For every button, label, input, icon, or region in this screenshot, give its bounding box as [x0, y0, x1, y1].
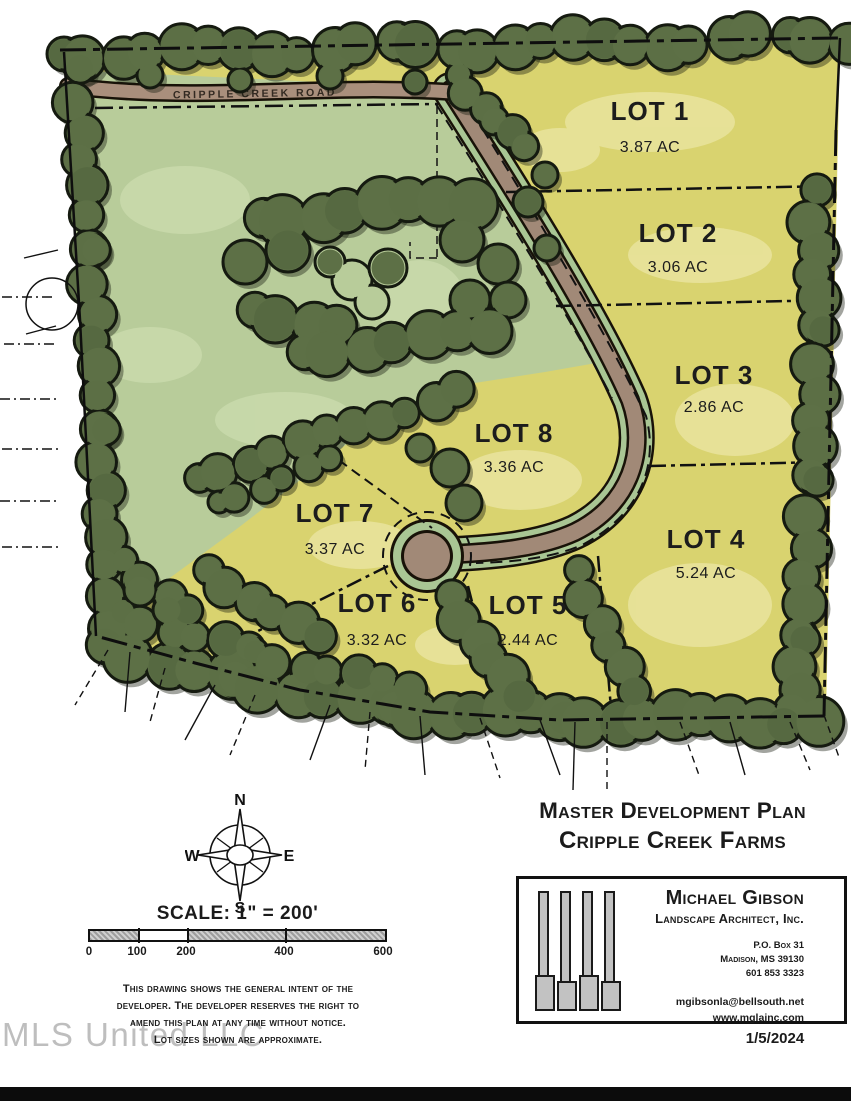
firm-name: Michael Gibson — [572, 887, 804, 910]
lot-label: LOT 1 — [611, 96, 690, 126]
development-plan-page: CRIPPLE CREEK ROAD — [0, 0, 851, 1101]
lot-acreage: 3.87 AC — [620, 139, 680, 156]
lot-label: LOT 3 — [675, 360, 754, 390]
bottom-black-bar — [0, 1087, 851, 1101]
contact-line: www.mglainc.com — [572, 1011, 804, 1027]
lot-acreage: 2.44 AC — [498, 632, 558, 649]
lot-label: LOT 5 — [489, 590, 568, 620]
title-block: Michael Gibson Landscape Architect, Inc.… — [516, 876, 847, 1024]
scale-tick-label: 0 — [86, 946, 92, 958]
scale-tick-label: 100 — [127, 946, 146, 958]
compass-w-label: W — [185, 848, 200, 865]
disclaimer-line: This drawing shows the general intent of… — [74, 981, 402, 998]
scale-tick-label: 600 — [373, 946, 392, 958]
firm-info: Michael Gibson Landscape Architect, Inc.… — [572, 887, 804, 1027]
scale-segment — [90, 931, 139, 940]
disclaimer-line: developer. The developer reserves the ri… — [74, 998, 402, 1015]
scale-segment — [286, 931, 385, 940]
plat-map: CRIPPLE CREEK ROAD — [0, 0, 851, 792]
scale-bar — [88, 929, 387, 942]
lot-label: LOT 6 — [338, 588, 417, 618]
lot-acreage: 2.86 AC — [684, 399, 744, 416]
firm-contact: mgibsonla@bellsouth.net www.mglainc.com — [572, 995, 804, 1027]
scale-segment — [188, 931, 286, 940]
lot-label: LOT 2 — [639, 218, 718, 248]
address-line: 601 853 3323 — [572, 967, 804, 981]
disclaimer-text: This drawing shows the general intent of… — [74, 981, 402, 1049]
disclaimer-line: amend this plan at any time without noti… — [74, 1015, 402, 1032]
scale-segment — [139, 931, 188, 940]
compass-e-label: E — [284, 848, 295, 865]
compass-n-label: N — [234, 793, 246, 809]
plan-title-line1: Master Development Plan — [500, 798, 845, 824]
lot-acreage: 5.24 AC — [676, 565, 736, 582]
lot-acreage: 3.37 AC — [305, 541, 365, 558]
lot-label: LOT 4 — [667, 524, 746, 554]
lot-acreage: 3.36 AC — [484, 459, 544, 476]
lot-acreage: 3.06 AC — [648, 259, 708, 276]
lot-label: LOT 8 — [475, 418, 554, 448]
plan-date: 1/5/2024 — [700, 1030, 850, 1047]
scale-tick-label: 400 — [274, 946, 293, 958]
disclaimer-line: Lot sizes shown are approximate. — [74, 1032, 402, 1049]
firm-subtitle: Landscape Architect, Inc. — [572, 911, 804, 926]
scale-tick-label: 200 — [176, 946, 195, 958]
scale-label: SCALE: 1" = 200' — [90, 903, 385, 925]
lot-acreage: 3.32 AC — [347, 632, 407, 649]
address-line: P.O. Box 31 — [572, 939, 804, 953]
address-line: Madison, MS 39130 — [572, 953, 804, 967]
contact-line: mgibsonla@bellsouth.net — [572, 995, 804, 1011]
plan-title-line2: Cripple Creek Farms — [500, 827, 845, 855]
compass-rose: N S W E — [185, 793, 295, 913]
firm-address: P.O. Box 31 Madison, MS 39130 601 853 33… — [572, 939, 804, 980]
lot-label: LOT 7 — [296, 498, 375, 528]
